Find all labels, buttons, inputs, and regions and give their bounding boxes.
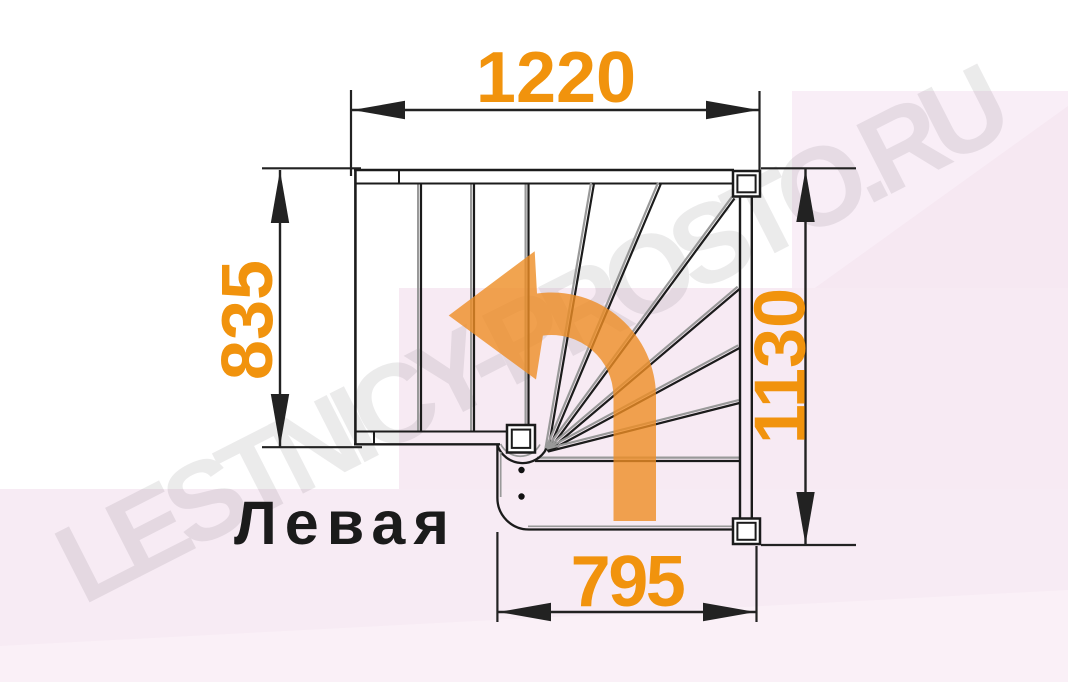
svg-text:1130: 1130 — [741, 288, 821, 444]
svg-text:795: 795 — [571, 542, 685, 622]
svg-text:Левая: Левая — [234, 489, 457, 557]
svg-text:1220: 1220 — [476, 38, 636, 118]
svg-text:835: 835 — [208, 260, 288, 380]
